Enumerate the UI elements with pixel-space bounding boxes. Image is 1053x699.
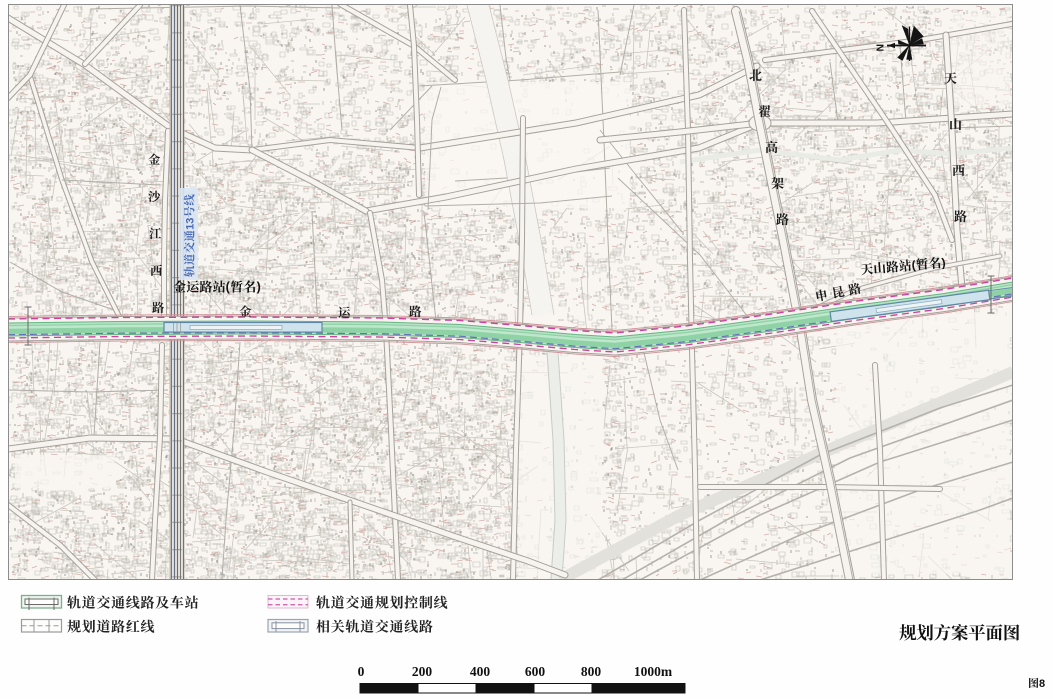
- svg-text:0: 0: [358, 664, 365, 679]
- svg-text:800: 800: [581, 664, 602, 679]
- svg-text:200: 200: [412, 664, 433, 679]
- svg-text:400: 400: [470, 664, 491, 679]
- svg-text:1000m: 1000m: [634, 664, 673, 679]
- svg-text:): ): [257, 280, 261, 294]
- svg-text:N: N: [875, 44, 887, 52]
- svg-text:600: 600: [525, 664, 546, 679]
- svg-text:8: 8: [1039, 678, 1045, 690]
- svg-text:13: 13: [185, 218, 197, 230]
